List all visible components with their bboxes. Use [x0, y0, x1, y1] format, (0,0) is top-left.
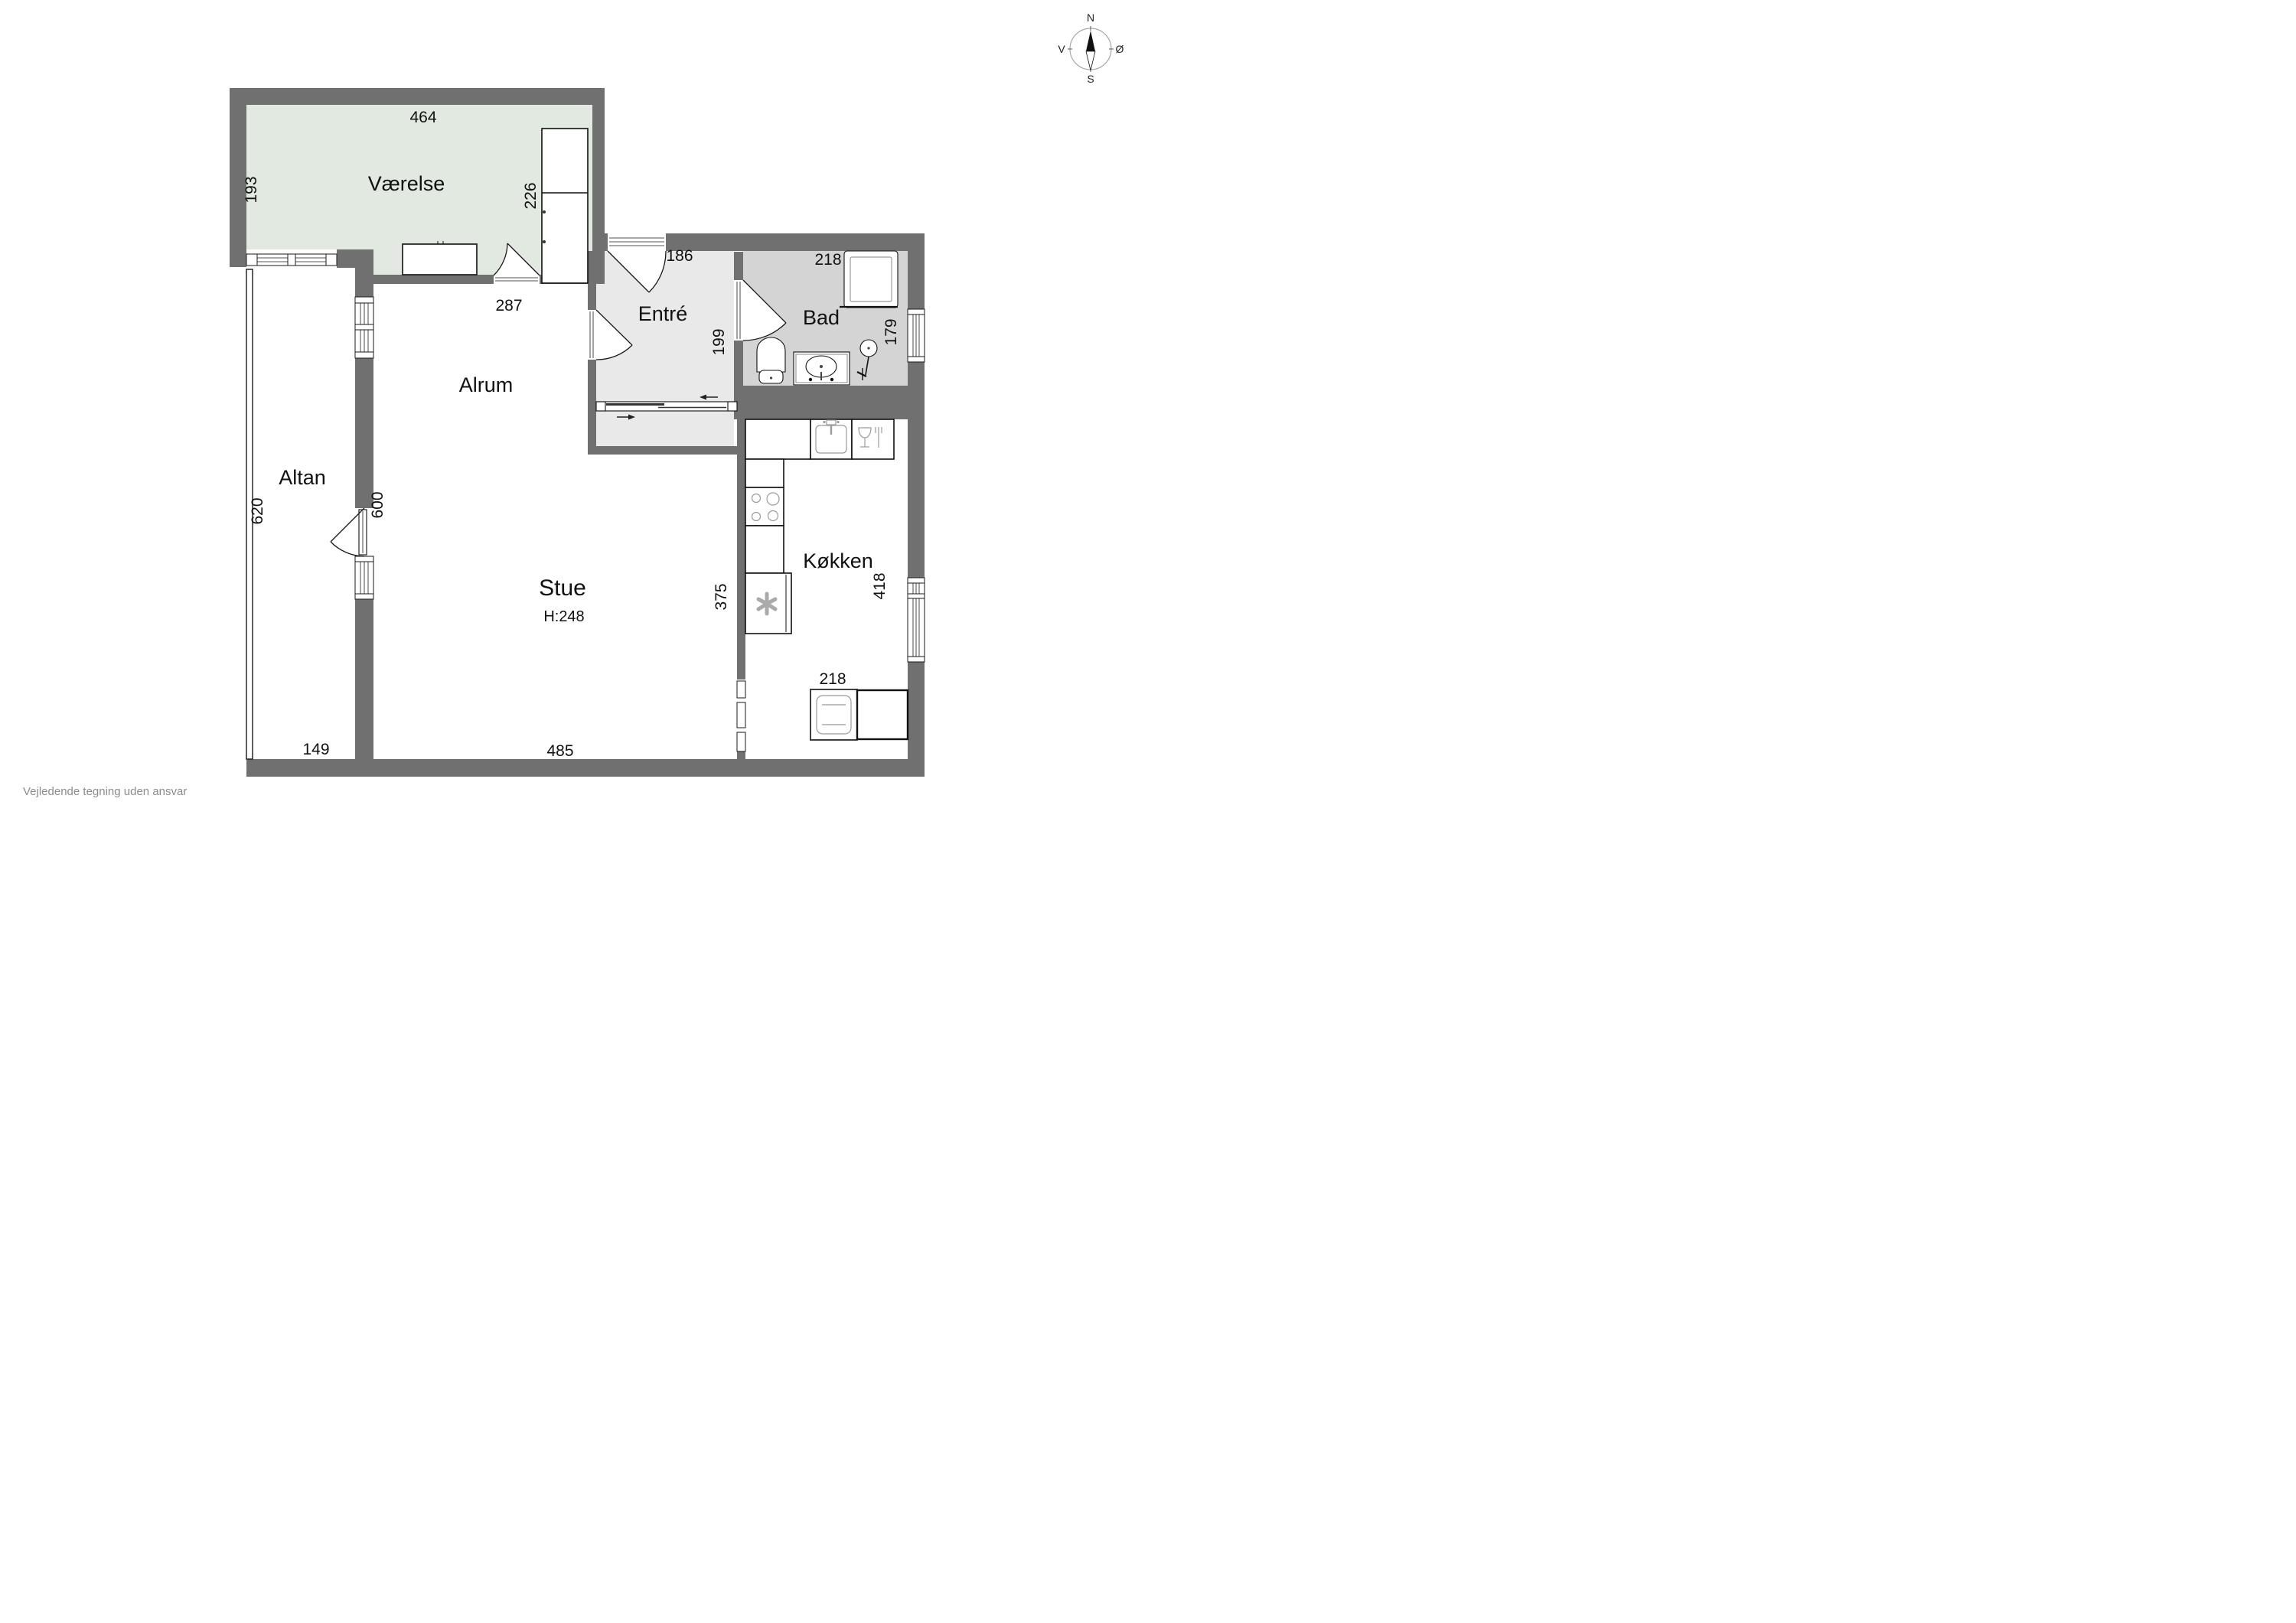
wall-vaerelse-step	[337, 249, 373, 268]
stue-dim-kitchenwall: 375	[713, 583, 730, 610]
bathroom-sink	[794, 352, 850, 385]
compass-o: Ø	[1116, 43, 1124, 55]
dashed-opening	[737, 681, 745, 751]
toilet	[757, 337, 785, 383]
washing-machine	[840, 251, 898, 308]
vaerelse-window	[246, 254, 337, 266]
kitchen-counter-b	[745, 526, 784, 573]
wall-entre-south	[588, 446, 737, 455]
alrum-label: Alrum	[459, 373, 514, 396]
kitchen-counter-a	[745, 459, 784, 487]
wardrobe	[542, 129, 588, 283]
koekken-window	[908, 578, 925, 662]
koekken-label: Køkken	[803, 549, 873, 572]
disclaimer-text: Vejledende tegning uden ansvar	[23, 785, 187, 798]
wall-south	[246, 759, 925, 777]
koekken-dim-depth: 418	[871, 572, 889, 599]
koekken-dim-bottom: 218	[819, 670, 846, 688]
altan-door-side-window	[355, 556, 373, 599]
floorplan-page: Værelse 464 193 226 287 Alrum 600 Altan …	[0, 0, 1148, 812]
bad-label: Bad	[803, 306, 840, 329]
wall-vaerelse-bottom-left	[373, 275, 494, 284]
stue-ceiling-height: H:248	[543, 608, 584, 625]
wall-koekken-west	[737, 419, 745, 680]
desk	[403, 241, 477, 275]
dishwasher	[852, 419, 894, 459]
floorplan-drawing: Værelse 464 193 226 287 Alrum 600 Altan …	[0, 0, 1148, 812]
entre-label: Entré	[638, 302, 688, 325]
kitchen-counter-corner	[745, 419, 810, 459]
altan-label: Altan	[279, 466, 326, 489]
alrum-window	[355, 297, 373, 358]
alrum-dim-wall: 600	[369, 491, 386, 518]
wall-east-1	[908, 251, 925, 309]
altan-dim-length: 620	[249, 497, 266, 524]
wall-entre-bad-2	[734, 341, 743, 386]
compass-v: V	[1058, 43, 1065, 55]
wall-koekken-west-stub	[737, 751, 745, 759]
entre-dim-depth: 199	[710, 328, 728, 355]
wall-entre-bad-1	[734, 252, 743, 280]
kitchen-counter-c	[857, 690, 908, 739]
stove	[745, 487, 784, 526]
vaerelse-dim-doorwall: 287	[495, 297, 522, 314]
kitchen-sink	[810, 419, 852, 459]
compass-s: S	[1087, 73, 1094, 85]
sliding-door	[596, 402, 737, 411]
wall-alrum-west-1	[355, 268, 373, 297]
compass-needle-south	[1086, 51, 1095, 70]
bad-window	[908, 309, 925, 362]
wall-alrum-west-2	[355, 358, 373, 508]
wall-entre-north-jamb	[592, 233, 608, 251]
vaerelse-dim-width: 464	[409, 109, 436, 126]
vaerelse-dim-left: 193	[243, 176, 260, 203]
bad-dim-depth: 179	[882, 318, 900, 345]
stue-dim-width: 485	[546, 742, 573, 760]
vaerelse-label: Værelse	[368, 172, 445, 195]
wall-vaerelse-top	[230, 88, 605, 105]
entre-dim-width: 186	[666, 247, 693, 265]
compass-rose: N S V Ø	[1058, 11, 1124, 85]
altan-door	[331, 508, 367, 556]
altan-dim-bottom: 149	[302, 741, 329, 758]
wall-alrum-west-3	[355, 599, 373, 759]
stue-label: Stue	[539, 575, 586, 601]
wall-bad-koekken	[734, 386, 925, 419]
wall-north	[666, 233, 925, 251]
extractor-unit	[745, 573, 791, 634]
compass-n: N	[1087, 11, 1094, 24]
compass-needle-north	[1086, 31, 1095, 51]
fridge	[810, 689, 857, 740]
bad-dim-width: 218	[814, 251, 841, 269]
vaerelse-dim-right: 226	[522, 182, 540, 209]
